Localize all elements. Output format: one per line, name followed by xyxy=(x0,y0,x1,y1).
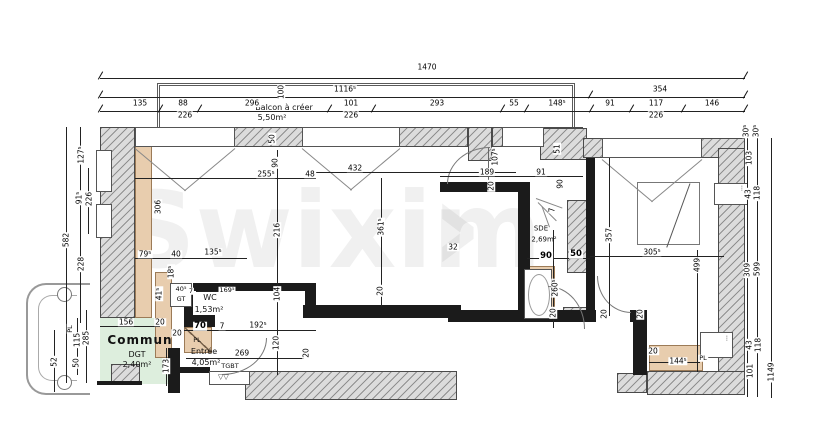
dim-label: 30⁵ xyxy=(742,124,750,139)
window-4 xyxy=(602,138,702,158)
dim-label: 1470 xyxy=(416,63,437,71)
dim-label: 51 xyxy=(553,143,561,155)
dim-label: 32 xyxy=(447,243,459,251)
dim-label: 50 xyxy=(72,357,80,369)
wall-step xyxy=(540,128,587,160)
dim-label: 260⁵ xyxy=(551,278,559,297)
wall-bottom-right xyxy=(647,371,745,395)
dim-label: 41⁵ xyxy=(155,287,163,302)
bathtub-basin xyxy=(528,274,550,316)
dim-label: 144⁵ xyxy=(668,357,687,365)
dim-label: 100 xyxy=(277,84,285,100)
dim-label: 18⁵ xyxy=(167,265,175,280)
stairwell-inner xyxy=(38,295,77,381)
dim-label: 432 xyxy=(347,164,363,172)
dim-label: 20 xyxy=(636,308,644,320)
window-left-1 xyxy=(96,150,112,192)
dim-line xyxy=(135,258,247,259)
dim-label: 91⁵ xyxy=(75,191,83,206)
dim-label: 55 xyxy=(508,99,520,107)
dim-label: 146 xyxy=(704,99,720,107)
dim-label: 50 xyxy=(268,133,276,145)
dim-label: 20 xyxy=(376,285,384,297)
dim-label: 1116⁵ xyxy=(333,85,357,93)
dim-label: 120 xyxy=(272,335,280,351)
dim-label: 107⁵ xyxy=(491,147,499,166)
dim-line xyxy=(66,127,67,383)
dim-line xyxy=(86,310,87,383)
room-sub-commun: DGT xyxy=(129,351,146,359)
window-3 xyxy=(502,127,544,147)
room-label-entree: Entrée xyxy=(191,348,217,356)
dim-label: 7 xyxy=(219,322,226,330)
dim-label: 118 xyxy=(753,185,761,201)
dim-line xyxy=(771,138,772,398)
dim-label: 306 xyxy=(154,199,162,215)
dim-label: 90 xyxy=(556,178,564,190)
dim-line xyxy=(135,178,316,179)
dim-label: 20 xyxy=(154,318,166,326)
tgbt-label: TGBT xyxy=(221,363,238,370)
dim-label: 20 xyxy=(302,347,310,359)
dim-label: 156 xyxy=(118,318,134,326)
window-left-2 xyxy=(96,204,112,238)
balcony-label: Balcon à créer xyxy=(255,104,313,112)
balcony-area: 5,50m² xyxy=(258,114,287,122)
dim-label: 599 xyxy=(753,261,761,277)
dim-label: 354 xyxy=(652,85,668,93)
dim-line xyxy=(440,176,583,177)
dim-label: 91 xyxy=(604,99,616,107)
window-2 xyxy=(302,127,400,147)
wall-bottom-block xyxy=(617,373,647,393)
wall-entree-bottom xyxy=(180,367,210,373)
dim-label: 50 xyxy=(569,250,583,259)
gt-label: GT xyxy=(176,296,187,303)
bed xyxy=(637,182,700,245)
room-area-entree: 4,05m² xyxy=(192,359,221,367)
dim-label: 293 xyxy=(429,99,445,107)
dim-label: 499 xyxy=(693,257,701,273)
dim-label: 135 xyxy=(132,99,148,107)
insulation-left-strip xyxy=(135,142,152,318)
dim-label: 103 xyxy=(745,150,753,166)
dim-label: 269 xyxy=(234,349,250,357)
dim-label: 192⁵ xyxy=(248,321,267,329)
dim-label: 70 xyxy=(193,322,207,331)
room-area-wc: 1,53m² xyxy=(195,306,224,314)
dim-label: 43 xyxy=(744,188,752,200)
tick xyxy=(743,104,748,112)
dim-label: 48 xyxy=(304,170,316,178)
wall-bedroom-left xyxy=(586,158,595,310)
stair-post xyxy=(57,287,72,302)
room-label-wc: WC xyxy=(203,294,217,302)
dim-label: 216 xyxy=(273,222,281,238)
dim-label: 226 xyxy=(343,111,359,119)
dim-label: 91 xyxy=(535,168,547,176)
dim-label: 296 xyxy=(244,99,260,107)
dim-label: 101 xyxy=(746,363,754,379)
wall-wc-top xyxy=(193,283,316,291)
dim-label: 101 xyxy=(343,99,359,107)
dim-label: 135⁵ xyxy=(203,248,222,256)
dim-label: 305⁵ xyxy=(642,248,661,256)
dim-label: 20 xyxy=(647,347,659,355)
dim-label: 30⁵ xyxy=(752,124,760,139)
window-1 xyxy=(135,127,235,147)
dim-label: 115 xyxy=(73,332,81,348)
closet-label: PL xyxy=(698,355,708,362)
dim-label: 255⁵ xyxy=(256,170,275,178)
room-label-commun: Commun xyxy=(107,334,172,346)
dim-label: 582 xyxy=(62,232,70,248)
room-label-sde: SDE xyxy=(534,226,548,233)
dim-label: 20 xyxy=(487,180,495,192)
dim-line xyxy=(100,78,745,79)
dim-label: 226 xyxy=(648,111,664,119)
tick xyxy=(743,90,748,98)
dim-label: 117 xyxy=(648,99,664,107)
wall-bedroom-step xyxy=(633,322,647,375)
dim-label: 20 xyxy=(600,308,608,320)
stair-post xyxy=(57,375,72,390)
tick xyxy=(743,71,748,79)
dim-label: 169⁵ xyxy=(218,287,235,294)
dim-label: 40⁵ xyxy=(175,286,188,293)
dim-label: 90 xyxy=(539,252,553,261)
dim-label: 1149 xyxy=(767,361,775,382)
room-area-sde: 2,69m² xyxy=(531,237,556,244)
dim-label: 173 xyxy=(162,358,170,374)
dim-label: 20 xyxy=(171,329,183,337)
dim-label: 40 xyxy=(170,250,182,258)
wall-commun-bottom xyxy=(97,381,142,385)
radiator-dots: ⋮ xyxy=(724,335,730,342)
dim-label: 20 xyxy=(549,307,557,319)
wall-livingroom-bottom xyxy=(303,305,461,318)
dim-label: 79⁵ xyxy=(138,250,153,258)
dim-label: 90 xyxy=(271,157,279,169)
floor-plan: Swixim › ⋮ ⋮ xyxy=(0,0,815,423)
dim-label: 88 xyxy=(177,99,189,107)
dim-label: 7 xyxy=(188,288,194,295)
wall-bottom-center xyxy=(245,371,457,400)
dim-label: 226 xyxy=(177,111,193,119)
dim-label: PL xyxy=(67,324,74,334)
dim-label: 189 xyxy=(479,168,495,176)
dim-label: 357 xyxy=(605,227,613,243)
dim-label: 104 xyxy=(273,286,281,302)
room-area-commun: 2,40m² xyxy=(123,361,152,369)
dim-label: 228 xyxy=(77,256,85,272)
dim-label: 7 xyxy=(548,207,556,214)
dim-label: 226 xyxy=(85,191,93,207)
dim-label: 285 xyxy=(82,330,90,346)
dim-label: 309 xyxy=(743,262,751,278)
dim-label: 52 xyxy=(50,356,58,368)
dim-label: 43 xyxy=(745,339,753,351)
dim-label: 127⁵ xyxy=(77,145,85,164)
dim-label: 118 xyxy=(754,337,762,353)
closet-label: PL xyxy=(193,337,201,344)
dim-label: 148⁵ xyxy=(547,99,566,107)
dim-label: 361⁵ xyxy=(377,217,385,236)
